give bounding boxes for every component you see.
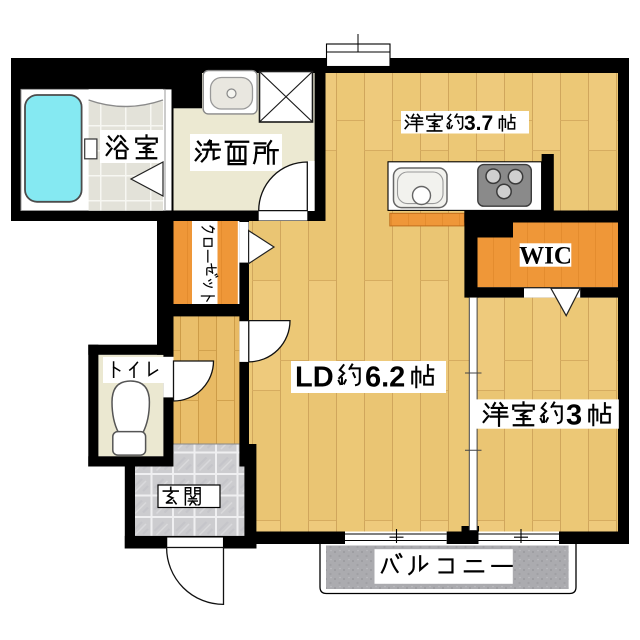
svg-text:3: 3 xyxy=(566,400,582,432)
svg-text:6.2: 6.2 xyxy=(365,362,405,394)
svg-text:3.7: 3.7 xyxy=(464,112,493,135)
svg-text:WIC: WIC xyxy=(519,243,572,270)
svg-text:LD: LD xyxy=(295,362,334,394)
